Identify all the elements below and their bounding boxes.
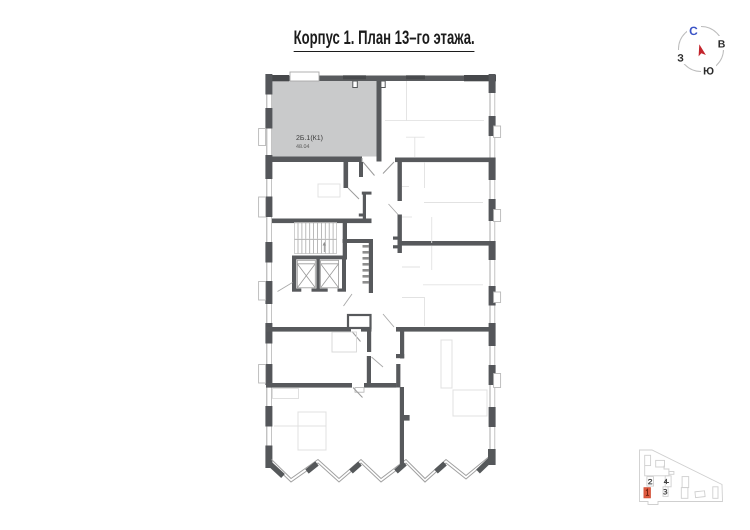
svg-text:С: С (689, 24, 698, 38)
svg-text:Ю: Ю (703, 66, 714, 78)
svg-text:В: В (718, 39, 726, 51)
svg-text:48.04: 48.04 (296, 144, 310, 150)
svg-text:2Б.1(К1): 2Б.1(К1) (296, 134, 323, 142)
svg-text:З: З (677, 53, 684, 65)
